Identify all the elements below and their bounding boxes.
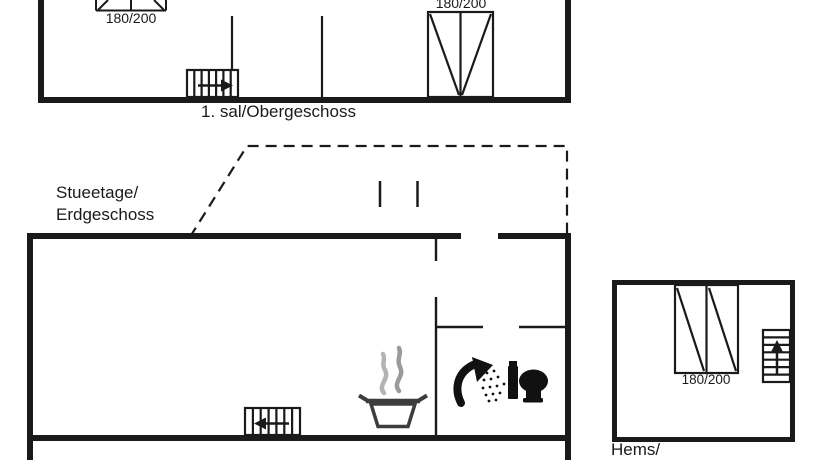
shower-icon [457,357,505,403]
upper-floor-label: 1. sal/Obergeschoss [201,103,356,122]
loft-floor-plan [615,283,793,440]
shower-spray-dots [482,370,506,403]
ground-floor-partitions [436,239,567,437]
floor-plan-image: 180/200 180/200 1. sal/Obergeschoss Stue… [0,0,834,460]
double-bed-icon [428,12,493,97]
double-bed-icon [96,0,166,11]
double-bed-icon [675,285,738,373]
ground-floor-plan [27,233,571,460]
staircase-icon [187,70,238,97]
bed-size-label: 180/200 [669,373,743,388]
roof-outline-dashed [190,146,567,237]
staircase-icon [245,408,300,435]
bed-size-label: 180/200 [424,0,498,11]
upper-floor-partitions [232,16,322,99]
bed-size-label: 180/200 [94,11,168,26]
toilet-icon [508,361,548,403]
loft-floor-label: Hems/ [611,441,660,460]
ground-floor-label-line2: Erdgeschoss [56,206,154,225]
ground-floor-label-line1: Stueetage/ [56,184,138,203]
staircase-icon [763,330,790,382]
chimney-marks [380,181,418,207]
floor-plan-drawing [0,0,834,460]
cooking-pot-icon [359,348,427,427]
